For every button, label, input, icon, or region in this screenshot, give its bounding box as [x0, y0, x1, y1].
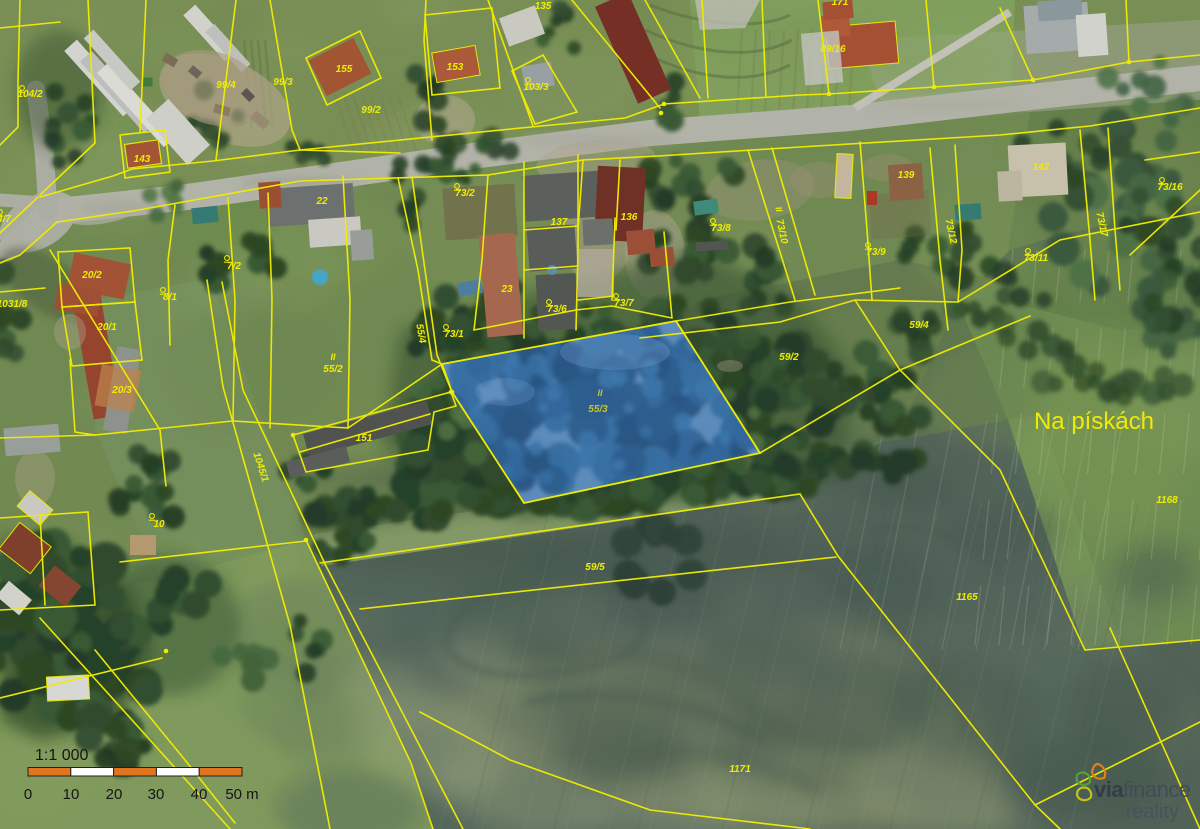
svg-text:II: II	[330, 352, 336, 362]
svg-text:1165: 1165	[956, 592, 978, 603]
svg-text:139: 139	[898, 170, 915, 181]
svg-text:8/1: 8/1	[163, 292, 177, 303]
svg-text:40: 40	[191, 786, 208, 803]
svg-text:143: 143	[134, 154, 151, 165]
svg-text:153: 153	[447, 62, 464, 73]
svg-text:89/16: 89/16	[820, 44, 845, 55]
svg-text:142: 142	[1033, 162, 1050, 173]
svg-text:10: 10	[63, 786, 80, 803]
svg-text:155: 155	[336, 64, 353, 75]
svg-text:1:1 000: 1:1 000	[35, 747, 88, 764]
svg-text:20/1: 20/1	[96, 322, 117, 333]
svg-text:20/3: 20/3	[111, 385, 132, 396]
svg-text:59/5: 59/5	[585, 562, 605, 573]
svg-text:55/2: 55/2	[323, 364, 343, 375]
svg-text:59/2: 59/2	[779, 352, 799, 363]
svg-text:151: 151	[356, 433, 373, 444]
svg-text:1168: 1168	[1156, 495, 1178, 506]
svg-text:171: 171	[832, 0, 849, 8]
svg-text:55/3: 55/3	[588, 404, 608, 415]
svg-text:Na pískách: Na pískách	[1034, 408, 1154, 435]
svg-text:20/2: 20/2	[81, 270, 102, 281]
svg-text:23: 23	[500, 284, 513, 295]
svg-text:reality: reality	[1126, 801, 1179, 823]
svg-text:59/4: 59/4	[909, 320, 929, 331]
svg-text:22: 22	[315, 196, 328, 207]
svg-text:137: 137	[551, 217, 568, 228]
svg-text:20: 20	[106, 786, 123, 803]
svg-text:99/3: 99/3	[273, 77, 293, 88]
svg-text:II: II	[597, 388, 603, 398]
svg-text:73/6: 73/6	[547, 304, 567, 315]
svg-text:73/1: 73/1	[444, 329, 464, 340]
svg-text:73/7: 73/7	[614, 298, 634, 309]
svg-text:136: 136	[621, 212, 638, 223]
svg-text:1171: 1171	[729, 764, 751, 775]
svg-text:50 m: 50 m	[225, 786, 258, 803]
svg-text:viafinance: viafinance	[1094, 777, 1191, 802]
svg-text:99/4: 99/4	[216, 80, 236, 91]
svg-text:99/2: 99/2	[361, 105, 381, 116]
svg-text:0: 0	[24, 786, 32, 803]
svg-text:1031/8: 1031/8	[0, 299, 28, 310]
svg-text:30: 30	[148, 786, 165, 803]
svg-text:135: 135	[535, 1, 552, 12]
